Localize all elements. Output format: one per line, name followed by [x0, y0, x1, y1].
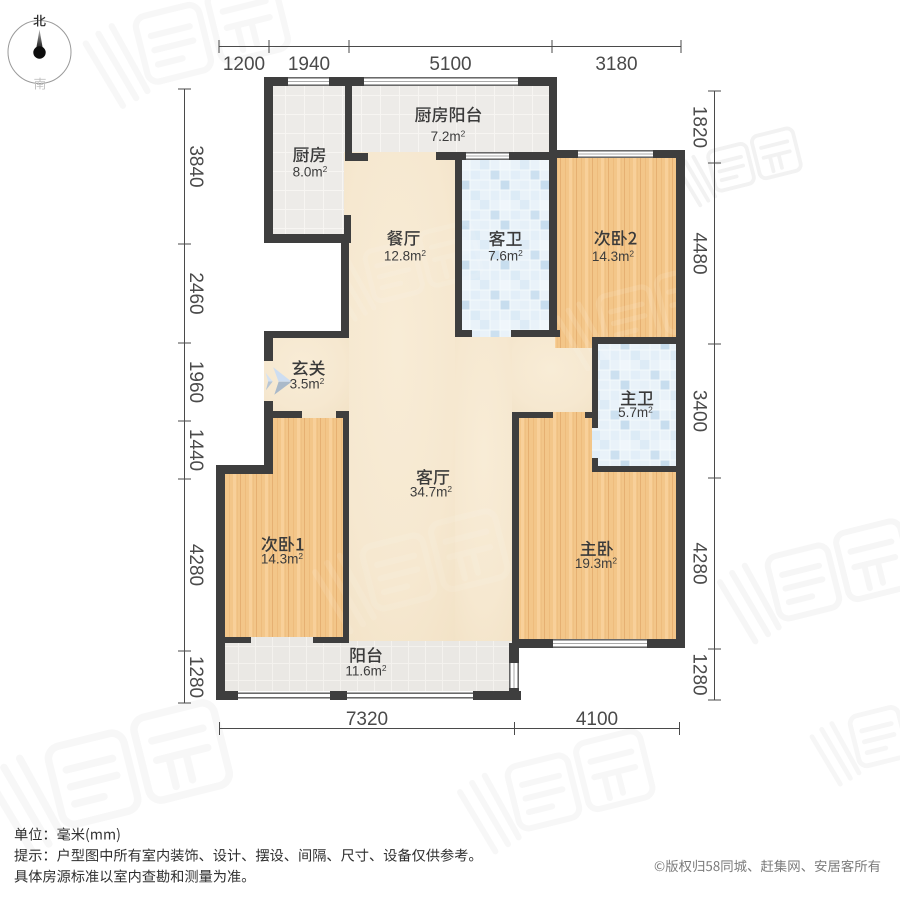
svg-text:4280: 4280 [185, 544, 206, 586]
svg-text:1440: 1440 [185, 429, 206, 471]
svg-text:7.2m2: 7.2m2 [431, 129, 466, 145]
svg-text:7320: 7320 [346, 709, 388, 730]
svg-text:34.7m2: 34.7m2 [410, 484, 453, 500]
svg-text:2460: 2460 [185, 272, 206, 314]
svg-text:3400: 3400 [689, 390, 710, 432]
svg-text:4280: 4280 [689, 542, 710, 584]
svg-text:1960: 1960 [185, 361, 206, 403]
svg-text:11.6m2: 11.6m2 [345, 663, 387, 679]
svg-text:3.5m2: 3.5m2 [290, 376, 325, 392]
svg-text:14.3m2: 14.3m2 [261, 551, 304, 567]
svg-text:4100: 4100 [576, 709, 618, 730]
svg-text:1940: 1940 [288, 54, 330, 75]
svg-text:1280: 1280 [689, 653, 710, 695]
svg-text:12.8m2: 12.8m2 [384, 248, 427, 264]
svg-text:7.6m2: 7.6m2 [488, 248, 523, 264]
svg-text:5.7m2: 5.7m2 [618, 405, 653, 421]
svg-text:3840: 3840 [185, 145, 206, 187]
svg-text:4480: 4480 [689, 232, 710, 274]
svg-text:5100: 5100 [429, 54, 471, 75]
svg-text:1280: 1280 [185, 656, 206, 698]
svg-text:3180: 3180 [595, 54, 637, 75]
svg-text:19.3m2: 19.3m2 [575, 556, 618, 572]
svg-text:1200: 1200 [223, 54, 265, 75]
svg-text:8.0m2: 8.0m2 [293, 164, 328, 180]
svg-text:1820: 1820 [689, 106, 710, 148]
svg-text:14.3m2: 14.3m2 [592, 249, 635, 265]
